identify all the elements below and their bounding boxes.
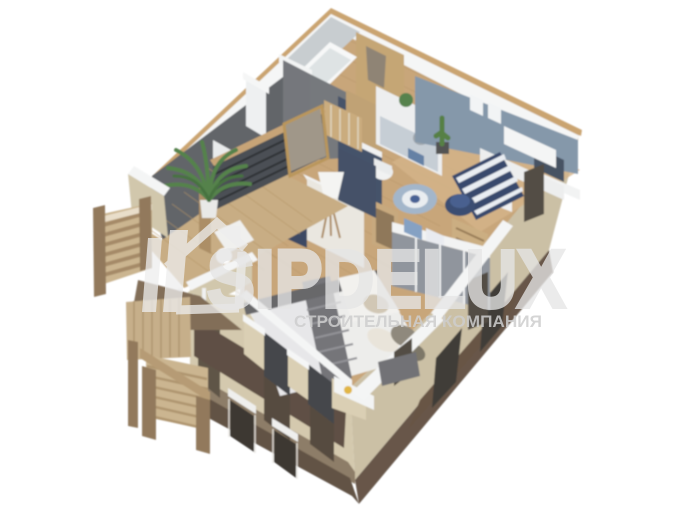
svg-text:СТРОИТЕЛЬНАЯ КОМПАНИЯ: СТРОИТЕЛЬНАЯ КОМПАНИЯ [294,312,542,331]
